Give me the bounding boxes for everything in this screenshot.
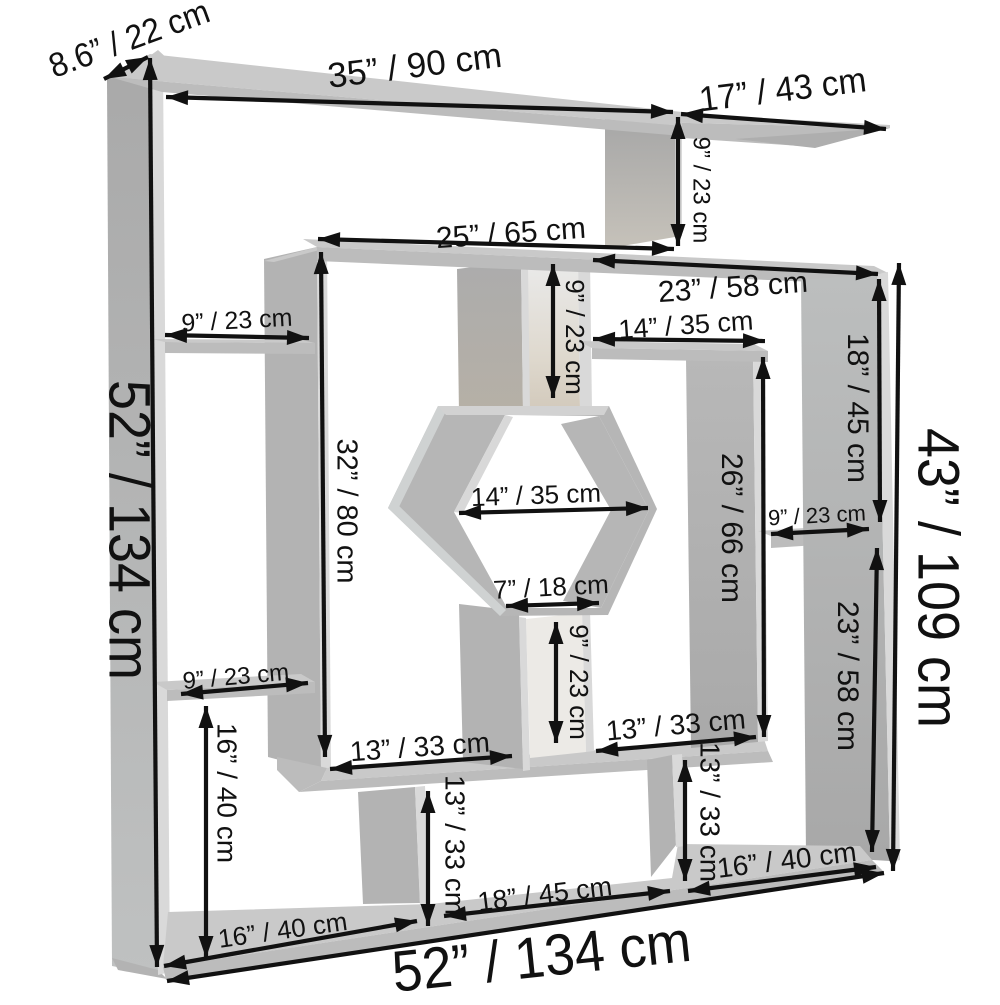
svg-text:9” / 23 cm: 9” / 23 cm <box>564 624 594 740</box>
svg-text:9” / 23 cm: 9” / 23 cm <box>767 500 866 530</box>
svg-text:13” / 33 cm: 13” / 33 cm <box>440 775 471 915</box>
svg-text:14” / 35 cm: 14” / 35 cm <box>470 478 601 513</box>
svg-text:9” / 23 cm: 9” / 23 cm <box>181 304 293 338</box>
svg-text:52” / 134 cm: 52” / 134 cm <box>97 380 162 680</box>
svg-text:23” / 58 cm: 23” / 58 cm <box>831 601 864 751</box>
svg-text:18” / 45 cm: 18” / 45 cm <box>841 333 874 483</box>
svg-text:26” / 66 cm: 26” / 66 cm <box>715 453 748 603</box>
svg-text:43” / 109 cm: 43” / 109 cm <box>906 428 971 728</box>
svg-text:7” / 18 cm: 7” / 18 cm <box>492 569 609 605</box>
svg-text:32” / 80 cm: 32” / 80 cm <box>330 438 362 583</box>
svg-text:16” / 40 cm: 16” / 40 cm <box>212 723 243 863</box>
svg-text:9” / 23 cm: 9” / 23 cm <box>688 137 715 244</box>
svg-text:9” / 23 cm: 9” / 23 cm <box>560 279 590 395</box>
